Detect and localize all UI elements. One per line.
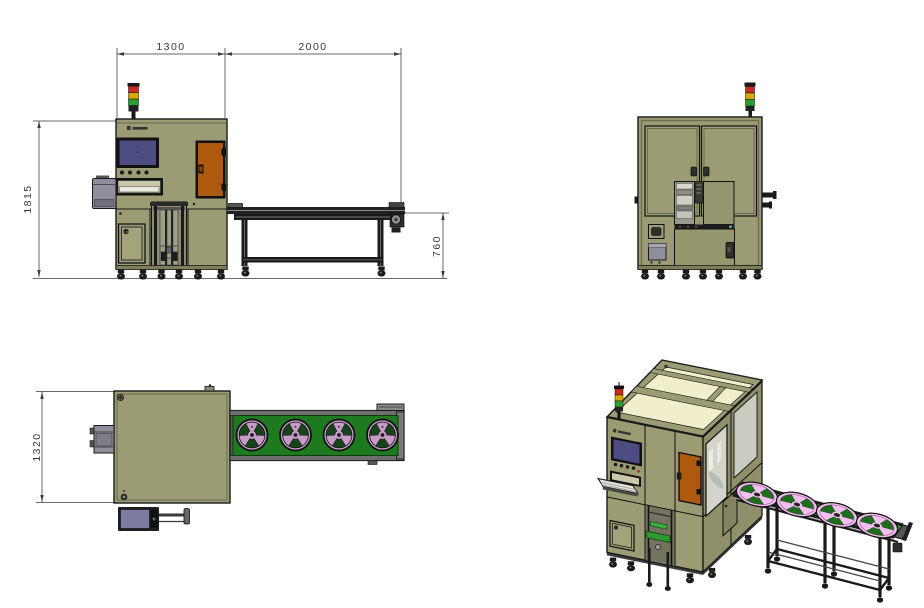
rear-equipment-rack	[675, 182, 735, 230]
door-hinge	[222, 184, 227, 191]
front-access-door	[196, 141, 227, 199]
front-cabinet	[93, 119, 228, 280]
door-hinge	[222, 149, 227, 156]
drawing-canvas: 1300 2000 1815 760	[0, 0, 924, 608]
rear-door-handle	[691, 167, 697, 176]
front-dimensions: 1300 2000 1815 760	[22, 41, 449, 279]
dim-machine-depth: 1320	[31, 432, 43, 461]
top-monitor-arm	[118, 507, 190, 531]
front-outfeed-conveyor	[227, 203, 405, 277]
rear-signal-tower-icon	[745, 83, 756, 118]
front-hmi-screen	[117, 138, 160, 169]
iso-access-door	[677, 453, 701, 506]
front-keyboard-tray	[116, 178, 164, 196]
lower-door-handle	[123, 229, 128, 234]
top-bolt-mark	[118, 395, 124, 401]
top-cabinet	[114, 384, 230, 503]
top-outfeed-conveyor	[230, 404, 404, 465]
front-lift-mechanism	[150, 202, 188, 269]
conveyor-drive-motor	[390, 214, 404, 233]
front-lower-door	[119, 224, 146, 263]
front-casters	[117, 270, 225, 280]
iso-center-bay	[645, 505, 675, 591]
top-side-electrical-box	[90, 426, 114, 454]
dim-machine-height: 1815	[22, 184, 34, 213]
iso-lower-door	[610, 521, 634, 552]
isometric-view	[598, 360, 913, 603]
front-view: 1300 2000 1815 760	[22, 41, 449, 280]
front-side-electrical-box	[93, 176, 117, 209]
rear-view	[635, 83, 777, 280]
rear-door-handle	[704, 167, 710, 176]
drawing-sheet: 1300 2000 1815 760	[0, 0, 924, 608]
iso-outfeed-conveyor	[733, 478, 913, 603]
dim-conveyor-length: 2000	[298, 41, 327, 53]
conveyor-table-frame	[234, 214, 392, 277]
dim-cabinet-width: 1300	[156, 41, 185, 53]
top-view: 1320	[31, 384, 404, 531]
rear-casters	[641, 270, 762, 280]
dim-conveyor-height: 760	[431, 235, 443, 257]
front-signal-tower-icon	[128, 83, 140, 120]
